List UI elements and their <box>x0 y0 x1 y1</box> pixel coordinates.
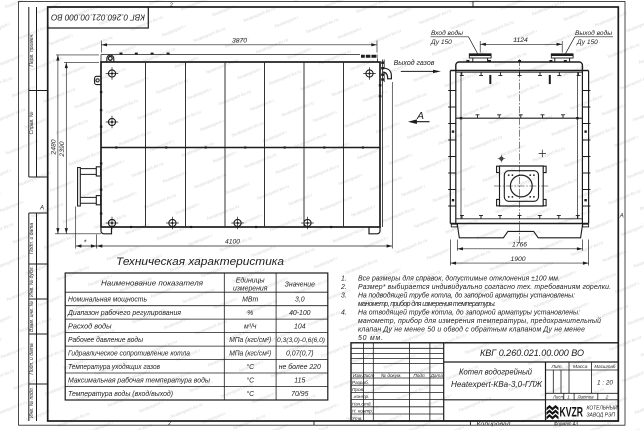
svg-text:КВГ 0.260.021.00.000 ВО: КВГ 0.260.021.00.000 ВО <box>51 13 145 22</box>
svg-text:Утв.: Утв. <box>352 416 363 421</box>
svg-text:манометр, прибор для измерения: манометр, прибор для измерения температу… <box>358 317 601 325</box>
svg-text:МПа (кгс/см²): МПа (кгс/см²) <box>229 350 271 357</box>
svg-text:Диапазон рабочего регулировани: Диапазон рабочего регулирования <box>67 309 181 317</box>
svg-text:2390: 2390 <box>59 141 66 157</box>
svg-text:Нач.отд.: Нач.отд. <box>352 401 372 406</box>
svg-text:измерения: измерения <box>233 286 268 293</box>
svg-text:А: А <box>619 214 624 220</box>
svg-text:1.: 1. <box>341 275 347 282</box>
svg-text:Лист: Лист <box>552 395 564 401</box>
svg-text:50 мм.: 50 мм. <box>358 335 383 342</box>
svg-text:Рабочее давление воды: Рабочее давление воды <box>68 336 143 344</box>
svg-text:клапан Ду не менее 50 и обвод: клапан Ду не менее 50 и обвод с обратным… <box>358 326 585 334</box>
svg-text:3.: 3. <box>341 292 347 299</box>
svg-text:*: * <box>84 240 87 247</box>
svg-text:Выход воды: Выход воды <box>575 29 612 37</box>
svg-text:Копировал: Копировал <box>477 421 512 427</box>
svg-text:40-100: 40-100 <box>289 310 311 317</box>
svg-text:Изм: Изм <box>353 373 362 378</box>
svg-text:2: 2 <box>605 395 609 401</box>
svg-text:Масштаб: Масштаб <box>594 364 615 370</box>
svg-text:1 : 20: 1 : 20 <box>597 380 613 387</box>
svg-text:Пров.: Пров. <box>352 387 364 392</box>
svg-text:Дата: Дата <box>430 373 444 378</box>
svg-text:А: А <box>416 110 424 122</box>
svg-text:Выход газов: Выход газов <box>394 59 435 67</box>
svg-text:Подп. и дата: Подп. и дата <box>29 343 35 375</box>
svg-text:Максимальная рабочая температу: Максимальная рабочая температура воды <box>68 376 210 384</box>
svg-text:3,0: 3,0 <box>295 297 305 304</box>
svg-text:Масса: Масса <box>573 364 588 370</box>
svg-text:4.: 4. <box>341 310 347 317</box>
svg-text:0,07(0,7): 0,07(0,7) <box>286 350 314 357</box>
svg-text:1124: 1124 <box>513 37 528 44</box>
svg-text:КОТЕЛЬНЫЙ: КОТЕЛЬНЫЙ <box>587 403 618 411</box>
svg-text:Расход воды: Расход воды <box>68 322 112 330</box>
svg-text:Подп. и дата: Подп. и дата <box>29 223 35 255</box>
svg-text:№ докум.: № докум. <box>381 373 402 378</box>
svg-text:м³/ч: м³/ч <box>244 323 257 330</box>
svg-text:КВГ 0.260.021.00.000 ВО: КВГ 0.260.021.00.000 ВО <box>480 348 584 359</box>
svg-text:Ду 150: Ду 150 <box>430 39 452 46</box>
svg-text:не более 220: не более 220 <box>279 363 321 371</box>
svg-text:Гидравлическое сопротивление к: Гидравлическое сопротивление котла <box>68 349 190 357</box>
svg-text:2.: 2. <box>340 284 347 291</box>
svg-text:Лит.: Лит. <box>550 364 562 370</box>
svg-text:2: 2 <box>170 3 173 9</box>
svg-text:МПа (кгс/см²): МПа (кгс/см²) <box>229 337 271 344</box>
svg-text:Вход воды: Вход воды <box>431 29 463 37</box>
svg-text:%: % <box>247 310 253 317</box>
svg-text:манометр, прибор для измерения: манометр, прибор для измерения температу… <box>358 300 496 308</box>
svg-text:1900: 1900 <box>510 256 525 263</box>
svg-text:Наименование показателя: Наименование показателя <box>101 281 203 288</box>
svg-text:Размер* выбирается индивидуаль: Размер* выбирается индивидуально согласн… <box>358 283 611 291</box>
svg-text:.контр.: .контр. <box>353 394 369 399</box>
svg-text:Н. контр.: Н. контр. <box>352 409 373 414</box>
svg-text:Ду 150: Ду 150 <box>576 39 598 46</box>
svg-text:Инв. № подл.: Инв. № подл. <box>29 387 35 418</box>
svg-text:KVZR: KVZR <box>560 404 584 420</box>
svg-text:Номинальная мощность: Номинальная мощность <box>68 297 147 304</box>
svg-text:МВт: МВт <box>242 297 258 304</box>
svg-text:Температура воды (вход/выход): Температура воды (вход/выход) <box>68 390 173 398</box>
svg-text:Значение: Значение <box>285 282 315 289</box>
svg-text:0,3(3,0)-0,6(6,0): 0,3(3,0)-0,6(6,0) <box>277 338 325 344</box>
svg-text:°С: °С <box>246 363 255 371</box>
svg-text:Лист: Лист <box>361 373 374 378</box>
svg-text:Котел водогрейный: Котел водогрейный <box>459 367 533 376</box>
svg-text:Перв. примен.: Перв. примен. <box>29 33 35 66</box>
svg-text:Все размеры для справок, допус: Все размеры для справок, допустимые откл… <box>358 274 560 282</box>
svg-text:Формат А3: Формат А3 <box>554 421 579 427</box>
svg-text:Взам. инв. №: Взам. инв. № <box>29 300 35 332</box>
svg-text:3870: 3870 <box>232 38 247 45</box>
svg-text:А: А <box>39 206 44 212</box>
svg-text:На отводящей трубе котла, до з: На отводящей трубе котла, до запорной ар… <box>358 309 580 317</box>
svg-text:Единицы: Единицы <box>236 277 265 285</box>
svg-text:Справ. №: Справ. № <box>29 111 35 134</box>
svg-text:Температура уходящих газов: Температура уходящих газов <box>68 363 160 371</box>
svg-text:Разраб.: Разраб. <box>352 380 369 385</box>
svg-text:115: 115 <box>294 377 305 384</box>
svg-text:70/95: 70/95 <box>291 391 308 398</box>
svg-text:1: 1 <box>567 395 570 401</box>
svg-text:Инв. № дубл.: Инв. № дубл. <box>29 266 35 297</box>
svg-text:°С: °С <box>246 376 255 384</box>
svg-text:104: 104 <box>294 323 306 330</box>
svg-text:°С: °С <box>246 390 255 398</box>
svg-text:2: 2 <box>168 421 171 427</box>
svg-text:Подп.: Подп. <box>413 373 425 378</box>
svg-text:4100: 4100 <box>225 239 240 246</box>
svg-text:Heatexpert-КВа-3,0-ГЛЖ: Heatexpert-КВа-3,0-ГЛЖ <box>451 380 543 389</box>
svg-text:Техническая характеристика: Техническая характеристика <box>116 256 284 268</box>
svg-text:2480: 2480 <box>51 139 58 155</box>
svg-text:На подводящей трубе котла, до: На подводящей трубе котла, до запорной а… <box>358 291 575 299</box>
svg-text:Листов: Листов <box>577 395 594 401</box>
svg-text:ЗАВОД РЭП: ЗАВОД РЭП <box>587 412 616 418</box>
